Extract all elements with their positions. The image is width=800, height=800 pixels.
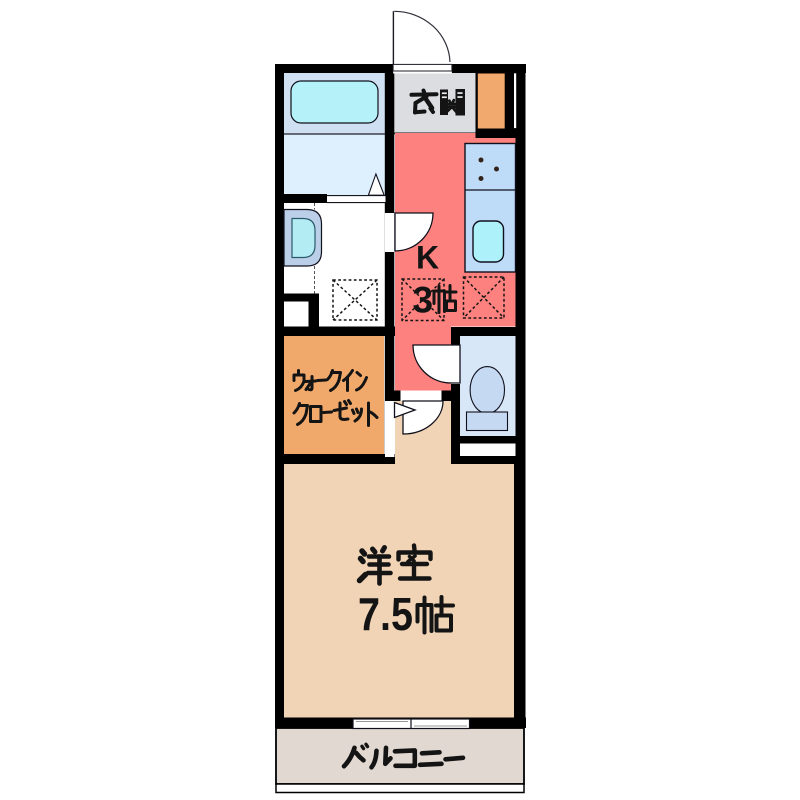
svg-text:7.5: 7.5 bbox=[358, 588, 413, 640]
svg-text:3: 3 bbox=[413, 280, 434, 321]
svg-text:K: K bbox=[416, 240, 439, 276]
